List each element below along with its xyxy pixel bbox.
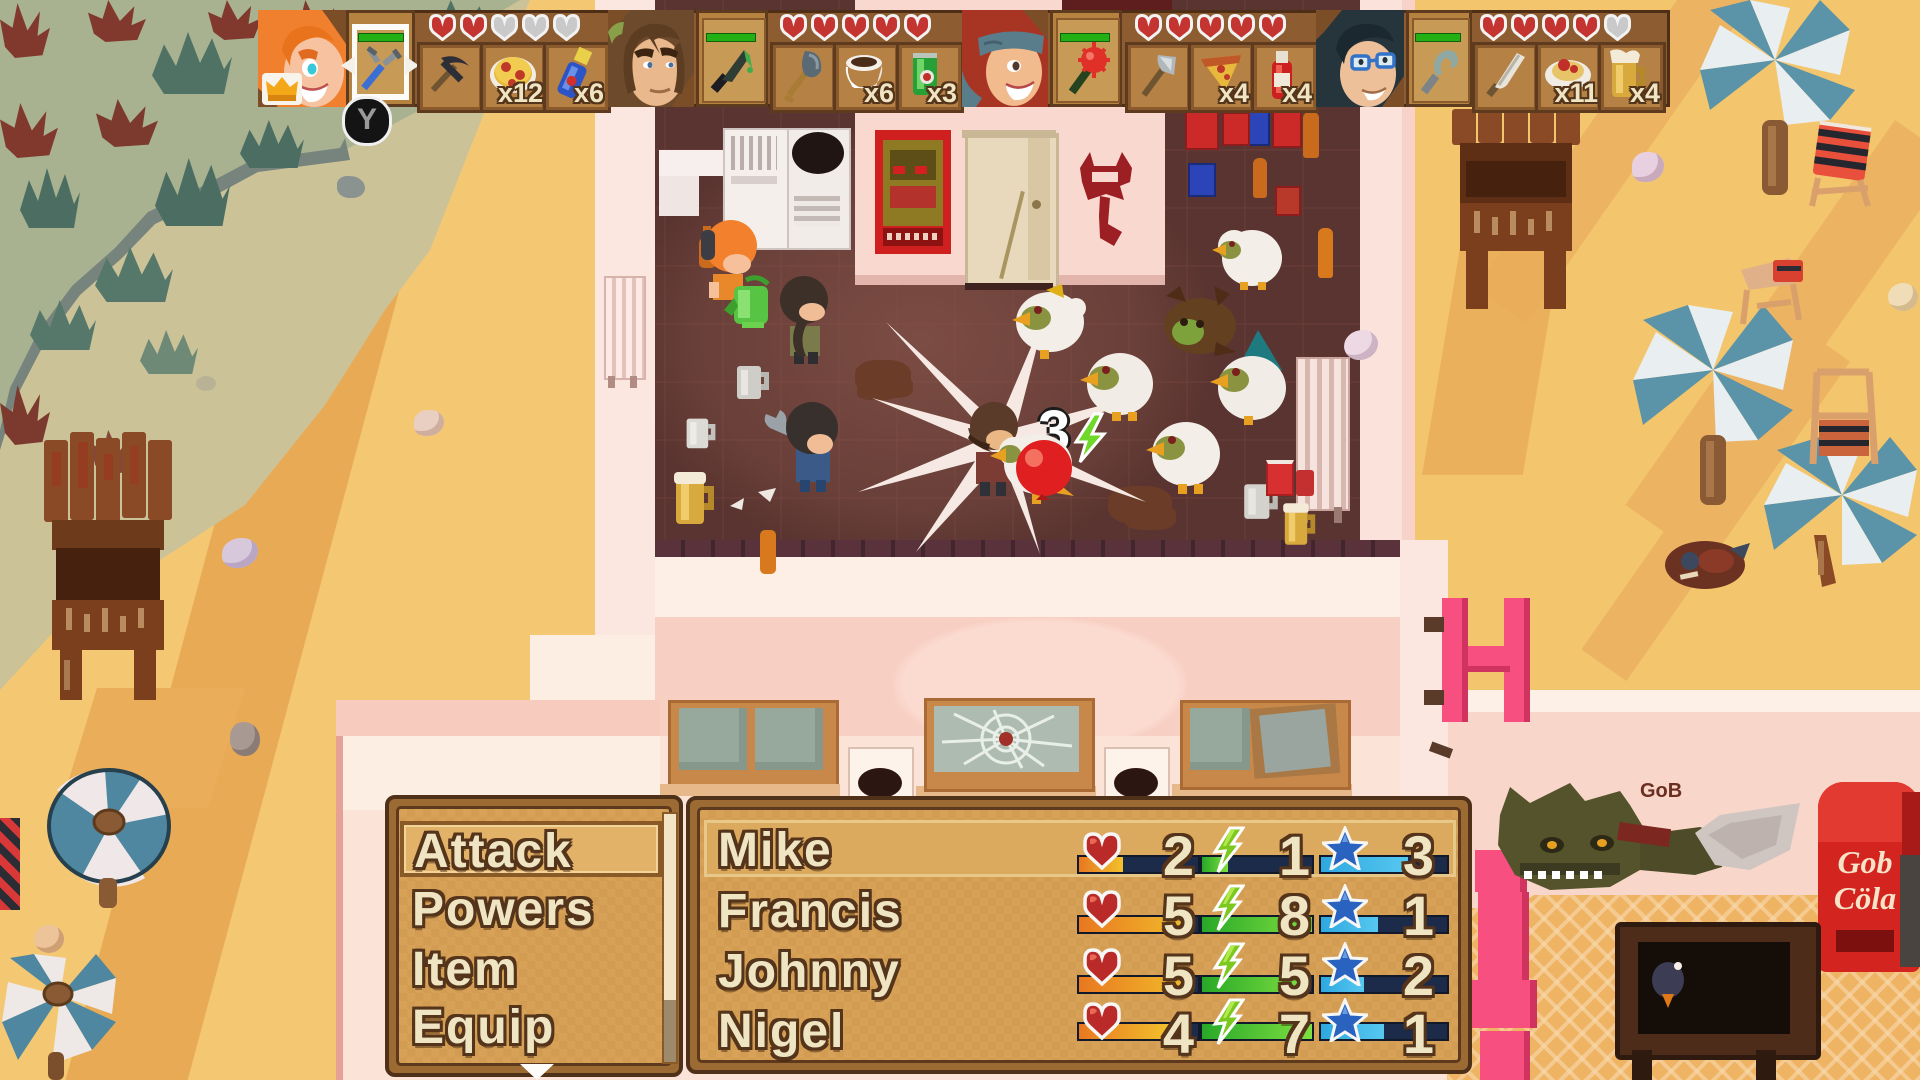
svg-text:GoB: GoB xyxy=(1640,780,1682,802)
